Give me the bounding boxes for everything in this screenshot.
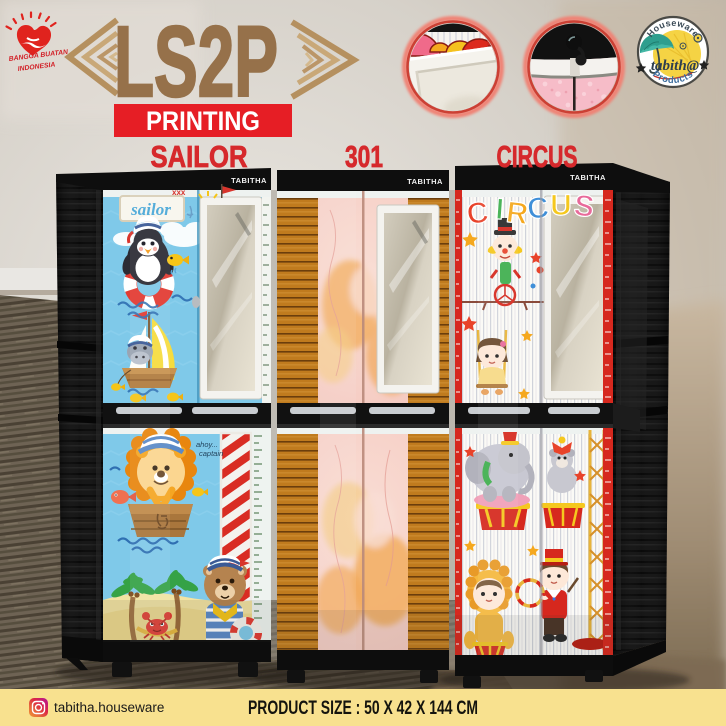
- svg-text:TABITHA: TABITHA: [407, 177, 443, 186]
- svg-text:S: S: [572, 189, 596, 224]
- svg-text:xxx: xxx: [172, 188, 186, 197]
- svg-text:ahoy...: ahoy...: [196, 440, 218, 449]
- svg-text:LS2P: LS2P: [114, 6, 278, 118]
- svg-text:U: U: [550, 189, 572, 222]
- svg-text:301: 301: [345, 139, 383, 174]
- svg-text:TABITHA: TABITHA: [231, 176, 267, 185]
- svg-text:PRODUCT SIZE : 50 X 42 X 144 C: PRODUCT SIZE : 50 X 42 X 144 CM: [248, 698, 478, 719]
- svg-text:SAILOR: SAILOR: [151, 139, 248, 174]
- svg-text:PRINTING: PRINTING: [146, 106, 260, 136]
- svg-text:captain: captain: [199, 449, 223, 458]
- svg-text:CIRCUS: CIRCUS: [497, 139, 578, 174]
- svg-text:tabitha.houseware: tabitha.houseware: [54, 700, 164, 715]
- svg-text:TABITHA: TABITHA: [570, 173, 606, 182]
- svg-text:C: C: [526, 191, 551, 226]
